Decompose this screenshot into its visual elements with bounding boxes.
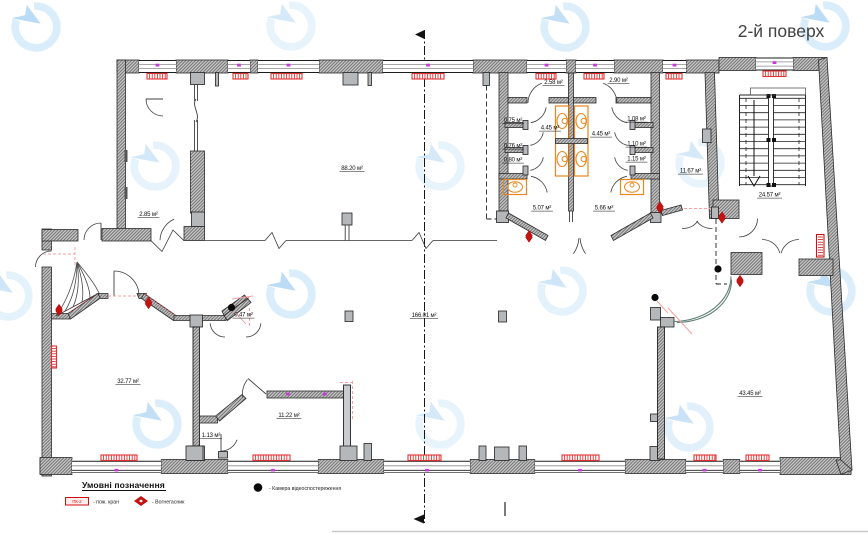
svg-text:88.20 м²: 88.20 м² [341, 166, 363, 172]
svg-text:2-й поверх: 2-й поверх [738, 21, 825, 41]
svg-text:4.45 м²: 4.45 м² [541, 126, 560, 132]
svg-text:166.01 м²: 166.01 м² [412, 313, 437, 319]
svg-text:5.07 м²: 5.07 м² [533, 206, 552, 212]
svg-text:1.15 м²: 1.15 м² [627, 157, 646, 163]
svg-text:- Камера відеоспостереження: - Камера відеоспостереження [269, 486, 341, 492]
svg-text:0.75 м²: 0.75 м² [504, 118, 523, 124]
svg-text:0.47 м²: 0.47 м² [234, 313, 253, 319]
svg-text:ПК-2: ПК-2 [72, 499, 82, 504]
svg-text:0.76 м²: 0.76 м² [504, 144, 523, 150]
svg-text:2.85 м²: 2.85 м² [139, 212, 158, 218]
svg-text:1.13 м²: 1.13 м² [202, 433, 221, 439]
svg-text:Умовні позначення: Умовні позначення [82, 480, 165, 490]
svg-text:4.45 м²: 4.45 м² [592, 132, 611, 138]
svg-text:5.66 м²: 5.66 м² [595, 206, 614, 212]
svg-text:0.80 м²: 0.80 м² [504, 158, 523, 164]
svg-text:- пож. кран: - пож. кран [93, 500, 119, 506]
svg-text:2.90 м²: 2.90 м² [609, 78, 628, 84]
svg-text:11.22 м²: 11.22 м² [278, 413, 299, 419]
svg-text:1.10 м²: 1.10 м² [627, 142, 646, 148]
svg-text:2.58 м²: 2.58 м² [544, 80, 563, 86]
svg-text:24.57 м²: 24.57 м² [759, 193, 781, 199]
svg-text:1.08 м²: 1.08 м² [627, 117, 646, 123]
svg-text:32.77 м²: 32.77 м² [117, 379, 139, 385]
svg-text:43.45 м²: 43.45 м² [739, 391, 761, 397]
svg-text:11.67 м²: 11.67 м² [680, 169, 701, 175]
svg-text:- Вогнегасник: - Вогнегасник [152, 500, 185, 506]
